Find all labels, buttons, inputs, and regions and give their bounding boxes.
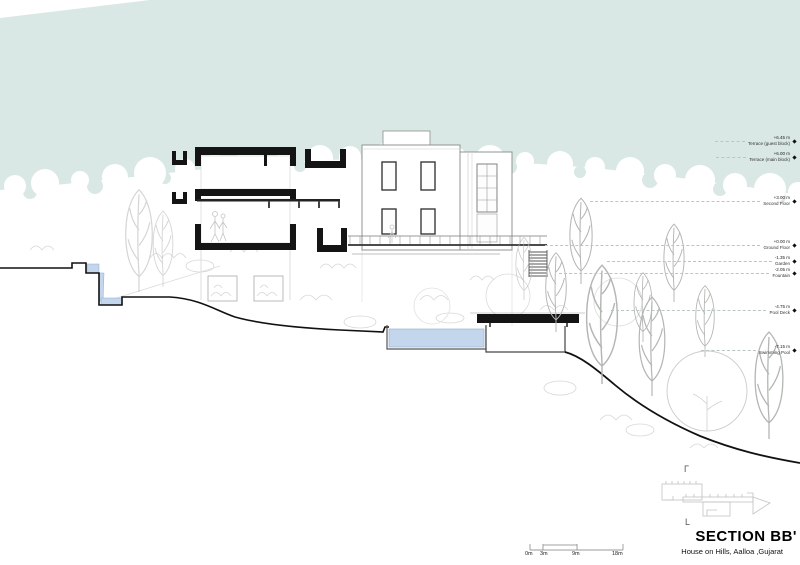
pool-pavilion — [470, 313, 585, 352]
leader-line — [716, 157, 746, 158]
scale-label-3m: 3m — [540, 551, 548, 557]
level-marker-icon — [792, 271, 796, 275]
leader-line — [545, 245, 760, 246]
roof-parapet — [383, 131, 430, 145]
drawing-canvas: +6.45 mTerrace (guest block) +6.00 mTerr… — [0, 0, 800, 565]
level-annotation: +6.45 mTerrace (guest block) — [715, 135, 796, 147]
level-name: Swimming Pool — [759, 350, 790, 356]
leader-line — [590, 201, 760, 202]
level-name: Ground Floor — [763, 245, 790, 251]
pavilion-roof-slab — [477, 314, 579, 323]
level-marker-icon — [792, 348, 796, 352]
swimming-pool — [387, 325, 486, 349]
scale-label-0m: 0m — [525, 551, 533, 557]
title-block: SECTION BB' House on Hills, Aalloa ,Guja… — [681, 529, 797, 556]
level-annotation: -2.05 mFountain — [559, 267, 796, 279]
tower-glazing — [477, 164, 497, 242]
drawing-title: SECTION BB' — [681, 529, 797, 546]
section-mark-bottom: L — [685, 517, 690, 527]
level-annotation: -4.75 mPool Deck — [611, 304, 796, 316]
section-mark-top: Γ — [684, 464, 689, 474]
level-marker-icon — [792, 243, 796, 247]
level-name: Fountain — [772, 273, 790, 279]
leader-line — [607, 261, 772, 262]
scale-bar — [530, 544, 623, 550]
level-name: Second Floor — [763, 201, 790, 207]
terrain-line-left — [0, 263, 389, 332]
level-annotation: -1.35 mGarden — [607, 255, 796, 267]
leader-line — [701, 350, 756, 351]
level-annotation: +3.00 mSecond Floor — [590, 195, 796, 207]
scale-label-9m: 9m — [572, 551, 580, 557]
level-marker-icon — [792, 199, 796, 203]
level-name: Terrace (guest block) — [748, 141, 790, 147]
level-annotation: +0.00 mGround Floor — [545, 239, 796, 251]
level-annotation: -7.15 mSwimming Pool — [701, 344, 796, 356]
section-drawing — [0, 0, 800, 565]
level-name: Terrace (main block) — [749, 157, 790, 163]
level-marker-icon — [792, 308, 796, 312]
level-marker-icon — [792, 259, 796, 263]
cascade-fountain — [87, 264, 122, 305]
leader-line — [559, 273, 769, 274]
scale-label-18m: 18m — [612, 551, 623, 557]
level-name: Pool Deck — [769, 310, 790, 316]
level-annotation: +6.00 mTerrace (main block) — [716, 151, 796, 163]
drawing-subtitle: House on Hills, Aalloa ,Gujarat — [681, 547, 797, 556]
level-marker-icon — [792, 139, 796, 143]
key-plan — [662, 481, 770, 516]
leader-line — [715, 141, 745, 142]
leader-line — [611, 310, 766, 311]
level-marker-icon — [792, 155, 796, 159]
basement-window — [208, 276, 283, 301]
